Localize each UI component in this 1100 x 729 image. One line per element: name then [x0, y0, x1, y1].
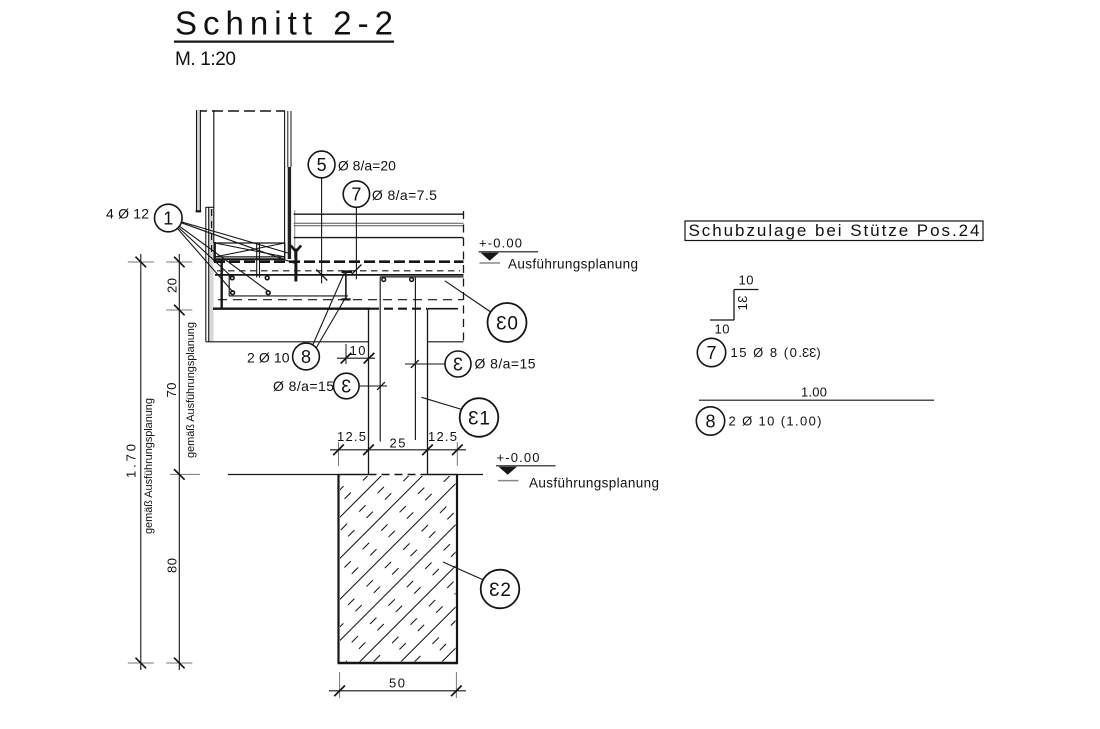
svg-text:3: 3 — [735, 296, 750, 303]
svg-text:2 Ø 10 (1.00): 2 Ø 10 (1.00) — [729, 414, 822, 429]
svg-text:25: 25 — [390, 435, 406, 450]
svg-text:70: 70 — [164, 383, 179, 398]
svg-text:0: 0 — [507, 313, 518, 334]
svg-text:1: 1 — [479, 408, 490, 429]
svg-text:5: 5 — [317, 155, 327, 175]
svg-text:15 Ø 8 (0.: 15 Ø 8 (0. — [731, 345, 803, 360]
svg-text:2 Ø 10: 2 Ø 10 — [247, 350, 290, 366]
svg-text:+-0.00: +-0.00 — [497, 450, 540, 465]
svg-text:3: 3 — [809, 345, 816, 360]
svg-text:20: 20 — [164, 278, 179, 293]
svg-text:7: 7 — [351, 185, 361, 205]
svg-text:M. 1:20: M. 1:20 — [175, 49, 236, 70]
svg-text:Ø 8/a=15: Ø 8/a=15 — [475, 356, 536, 372]
svg-text:Schubzulage bei Stütze Pos.24: Schubzulage bei Stütze Pos.24 — [689, 221, 980, 240]
svg-text:12.5: 12.5 — [428, 429, 457, 444]
svg-text:1.00: 1.00 — [801, 385, 827, 400]
svg-text:+-0.00: +-0.00 — [479, 236, 522, 251]
svg-text:gemäß Ausführungsplanung: gemäß Ausführungsplanung — [143, 398, 155, 534]
svg-text:80: 80 — [164, 558, 179, 573]
svg-text:Ø 8/a=15: Ø 8/a=15 — [273, 378, 334, 394]
svg-text:gemäß Ausführungsplanung: gemäß Ausführungsplanung — [185, 322, 197, 458]
svg-text:Ø 8/a=20: Ø 8/a=20 — [338, 158, 396, 174]
svg-text:Schnitt 2-2: Schnitt 2-2 — [175, 5, 393, 42]
svg-text:4 Ø 12: 4 Ø 12 — [106, 206, 149, 222]
svg-text:8: 8 — [705, 412, 715, 432]
svg-text:1: 1 — [735, 303, 750, 310]
svg-text:12.5: 12.5 — [337, 429, 366, 444]
svg-text:10: 10 — [739, 273, 754, 288]
svg-text:50: 50 — [389, 676, 405, 691]
svg-text:3: 3 — [341, 377, 351, 397]
svg-text:3: 3 — [453, 355, 463, 375]
svg-text:3: 3 — [496, 313, 507, 334]
svg-text:Ø 8/a=7.5: Ø 8/a=7.5 — [372, 187, 437, 203]
svg-text:Ausführungsplanung: Ausführungsplanung — [529, 476, 659, 491]
svg-text:2: 2 — [500, 580, 511, 601]
svg-text:10: 10 — [715, 322, 730, 337]
svg-text:7: 7 — [706, 343, 716, 363]
svg-text:3: 3 — [468, 408, 479, 429]
svg-text:1: 1 — [163, 209, 173, 229]
svg-text:1.70: 1.70 — [123, 444, 138, 478]
svg-text:8: 8 — [301, 347, 311, 367]
svg-text:3: 3 — [489, 580, 500, 601]
svg-text:): ) — [816, 345, 820, 360]
svg-text:3: 3 — [802, 345, 809, 360]
svg-text:10: 10 — [350, 343, 366, 358]
svg-text:Ausführungsplanung: Ausführungsplanung — [508, 257, 638, 272]
